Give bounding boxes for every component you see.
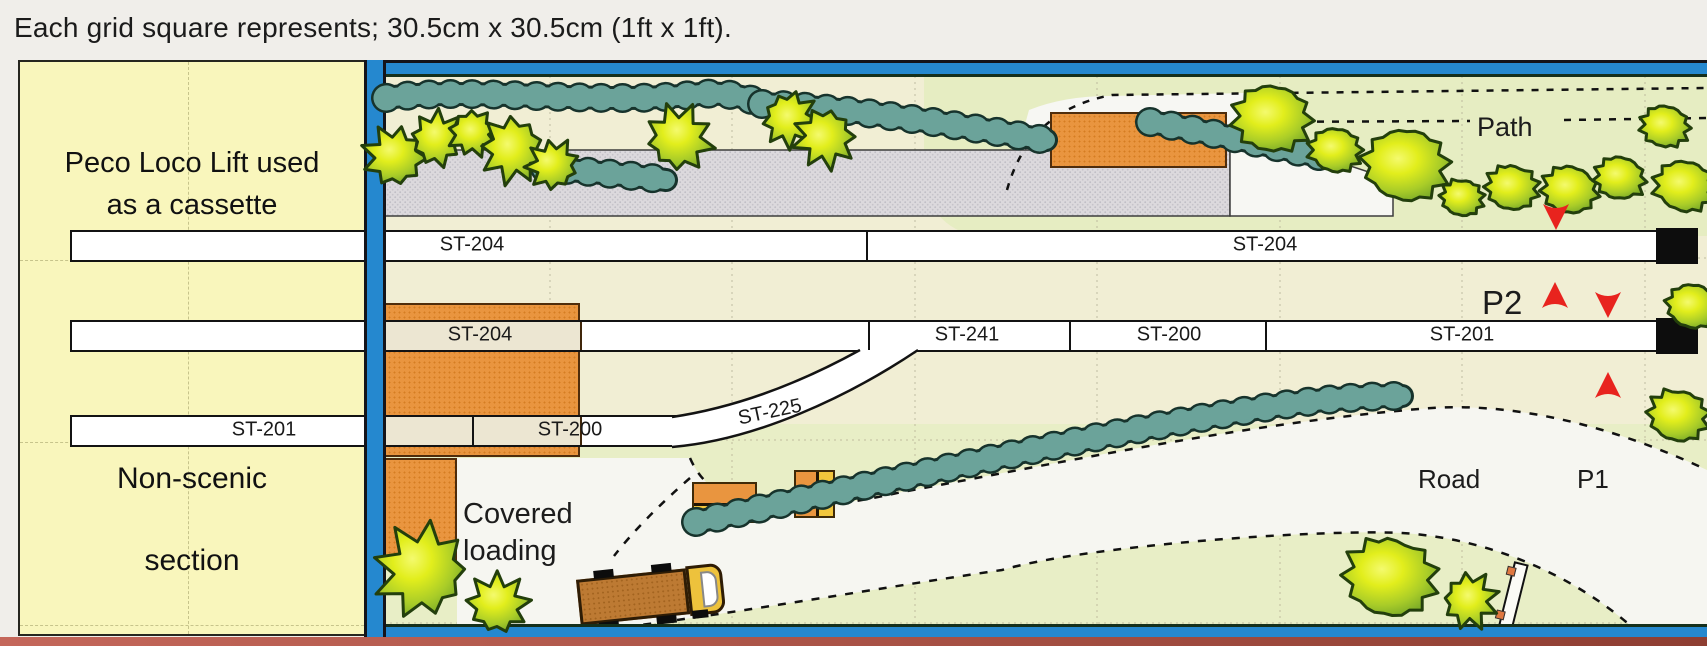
tree [1664,285,1707,329]
tree [1230,86,1315,151]
tree [1439,179,1485,215]
tree [1483,166,1540,210]
scenery-overlay-svg [0,0,1707,646]
track-plan-page: { "title": "Each grid square represents;… [0,0,1707,646]
arrow-up-icon [1595,372,1621,398]
tree [1539,166,1600,213]
hedge [386,94,762,104]
tree [1639,106,1692,147]
platform-arrows [1542,204,1621,398]
arrow-down-icon [1595,292,1621,318]
tree [649,104,716,170]
tree [1359,130,1452,200]
tree [1593,157,1648,198]
scan-edge-strip [0,637,1707,646]
tree [466,571,531,632]
tree [1652,161,1707,212]
tree [375,520,465,616]
arrow-up-icon [1542,282,1568,308]
tree [1341,538,1439,615]
trees [362,86,1707,631]
tree [1445,573,1499,630]
tree [1646,389,1707,441]
